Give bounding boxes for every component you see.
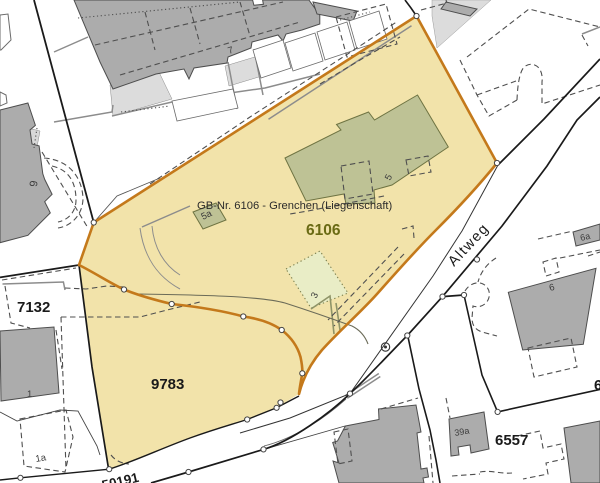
svg-text:6557: 6557 <box>495 432 528 449</box>
svg-text:61: 61 <box>594 378 600 394</box>
svg-text:9783: 9783 <box>151 376 184 393</box>
svg-text:GB-Nr. 6106 - Grenchen (Liegen: GB-Nr. 6106 - Grenchen (Liegenschaft) <box>197 200 393 212</box>
svg-text:6106: 6106 <box>306 222 341 239</box>
svg-text:1: 1 <box>27 389 32 400</box>
svg-text:7132: 7132 <box>17 299 50 316</box>
svg-text:9: 9 <box>28 180 40 187</box>
